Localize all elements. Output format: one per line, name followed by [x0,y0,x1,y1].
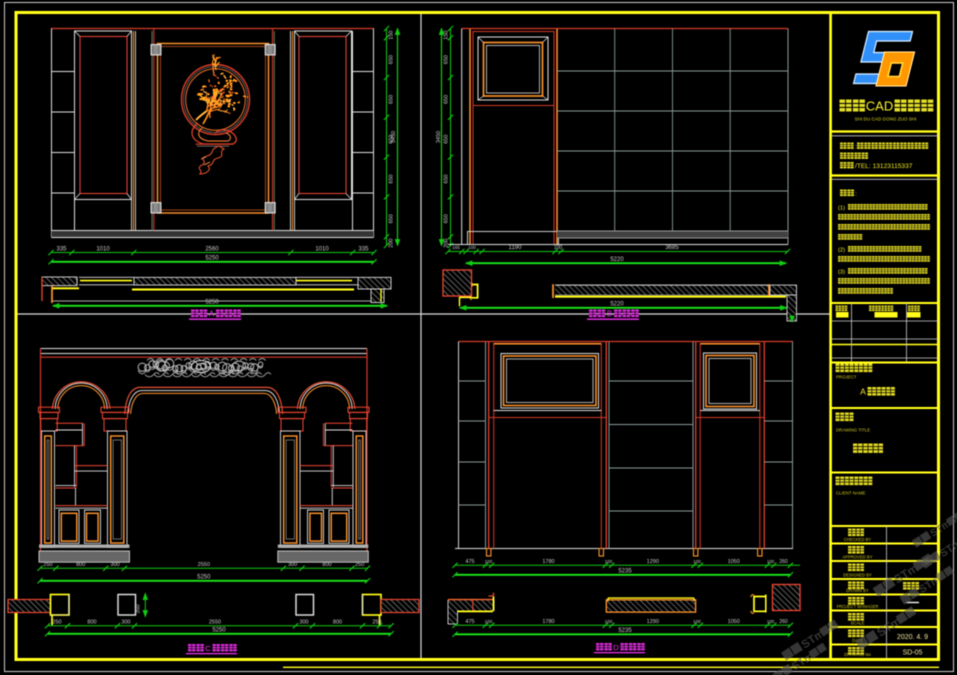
svg-text:5250: 5250 [205,256,219,262]
svg-text:350: 350 [136,605,142,614]
svg-text:100: 100 [767,619,775,624]
svg-text:165: 165 [452,245,460,250]
svg-text:1780: 1780 [542,559,554,565]
svg-text:650: 650 [443,95,449,104]
svg-text:(1): (1) [838,205,845,211]
svg-text:DRAWN BY: DRAWN BY [846,588,869,593]
svg-text:SD-05: SD-05 [903,649,923,656]
svg-text:3450: 3450 [391,131,397,143]
svg-text:650: 650 [443,135,449,144]
svg-text:2550: 2550 [198,562,210,568]
svg-text:A: A [209,310,215,319]
svg-text:100: 100 [554,245,563,251]
svg-text::: : [855,191,857,198]
svg-text:100: 100 [468,245,476,250]
svg-text:3450: 3450 [436,131,442,143]
svg-text:1050: 1050 [728,619,740,625]
svg-text:650: 650 [443,214,449,223]
svg-text:1190: 1190 [509,245,523,251]
svg-text:100: 100 [693,559,701,564]
svg-text:800: 800 [87,619,96,625]
svg-text:5220: 5220 [610,301,624,307]
svg-text:250: 250 [43,562,52,568]
svg-text:5250: 5250 [212,627,226,633]
svg-text:100: 100 [605,619,613,624]
svg-text:D: D [613,643,619,652]
svg-text:5250: 5250 [205,299,219,305]
svg-text:2020. 4. 9: 2020. 4. 9 [897,634,928,641]
svg-text::: : [855,143,857,150]
svg-text:250: 250 [52,619,61,625]
svg-text:1290: 1290 [647,619,659,625]
svg-text:100: 100 [485,559,493,564]
svg-text:150: 150 [388,31,394,40]
svg-text:250: 250 [355,562,364,568]
svg-text:335: 335 [358,247,369,253]
svg-text:650: 650 [443,55,449,64]
svg-text:5235: 5235 [618,628,632,634]
svg-text:1780: 1780 [542,619,554,625]
svg-text:CAD: CAD [866,99,893,114]
svg-text:200: 200 [443,239,449,248]
svg-text:5235: 5235 [618,568,632,574]
svg-text:250: 250 [372,619,381,625]
svg-text:(2): (2) [838,247,845,253]
svg-text:300: 300 [121,619,130,625]
svg-text:5250: 5250 [197,574,211,580]
svg-text:SCALE: SCALE [851,621,865,626]
svg-text:CHECKED BY: CHECKED BY [844,537,871,542]
svg-text:B: B [607,310,612,319]
svg-text:1010: 1010 [315,247,329,253]
svg-text:1010: 1010 [96,247,110,253]
svg-text:APPROVED BY: APPROVED BY [842,555,872,560]
svg-text:5220: 5220 [610,257,624,263]
svg-text:1290: 1290 [647,559,659,565]
svg-text:CLIENT NAME: CLIENT NAME [836,491,866,496]
svg-text:650: 650 [388,214,394,223]
svg-text:650: 650 [388,95,394,104]
svg-text:800: 800 [76,562,85,568]
svg-text:100: 100 [605,559,613,564]
svg-text:650: 650 [388,55,394,64]
svg-text:DRAWING No: DRAWING No [844,652,871,657]
svg-text:800: 800 [333,619,342,625]
svg-text:300: 300 [299,619,308,625]
svg-text:1050: 1050 [728,559,740,565]
svg-text:PROJECT: PROJECT [836,375,857,380]
svg-text:260: 260 [779,619,788,625]
svg-text:650: 650 [388,174,394,183]
svg-text:300: 300 [110,562,119,568]
svg-text:260: 260 [779,559,788,565]
svg-text:(3): (3) [838,269,845,275]
svg-text:100: 100 [767,559,775,564]
svg-text:SHI DU CAD GONG ZUO SHI: SHI DU CAD GONG ZUO SHI [855,117,917,122]
svg-text:PROJECT MANAGER: PROJECT MANAGER [837,604,879,609]
svg-text:C: C [205,644,211,653]
svg-text:475: 475 [465,619,474,625]
svg-text:DESIGNED BY: DESIGNED BY [843,573,872,578]
svg-text:300: 300 [288,562,297,568]
svg-text:DRAWING TITLE: DRAWING TITLE [836,428,870,433]
svg-text:2560: 2560 [205,247,219,253]
svg-text:800: 800 [322,562,331,568]
svg-text:A: A [860,387,866,397]
svg-text:100: 100 [485,619,493,624]
svg-text:150: 150 [443,31,449,40]
svg-text:200: 200 [388,239,394,248]
svg-text:650: 650 [443,174,449,183]
svg-text:3685: 3685 [665,245,679,251]
svg-text:100: 100 [693,619,701,624]
svg-text:2550: 2550 [209,619,221,625]
svg-text:475: 475 [465,559,474,565]
svg-text:/TEL: 13123115337: /TEL: 13123115337 [855,163,913,170]
svg-text:335: 335 [56,247,67,253]
